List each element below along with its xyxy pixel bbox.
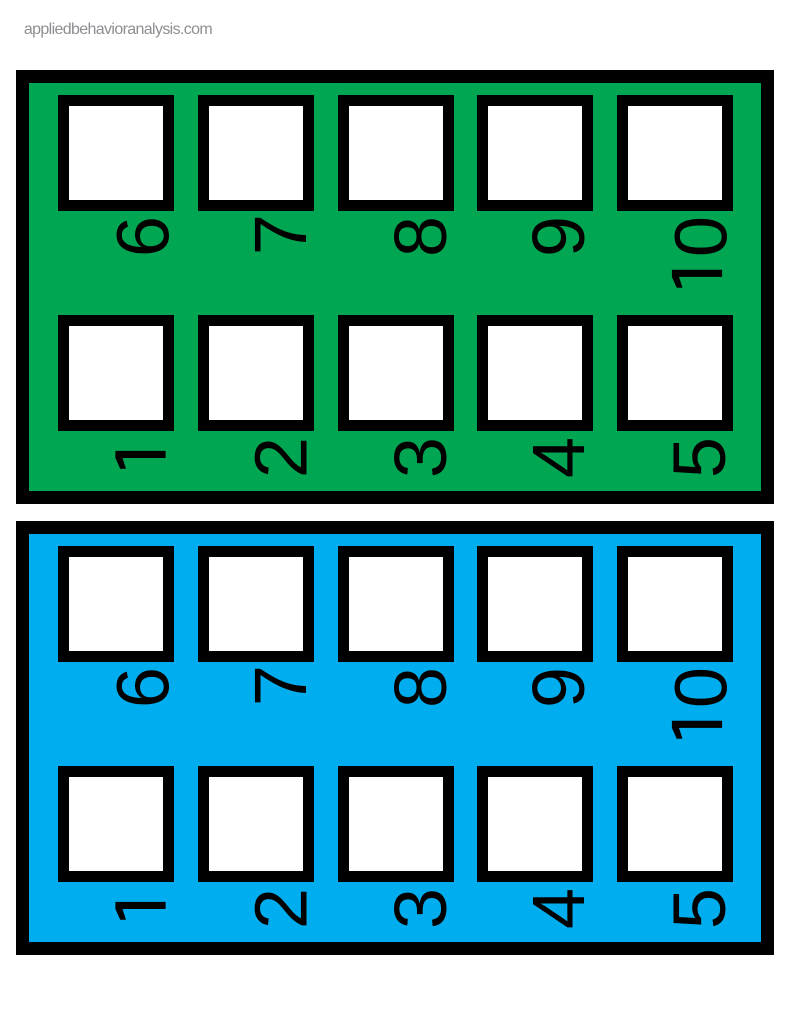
svg-text:5: 5 <box>658 437 741 478</box>
svg-text:3: 3 <box>379 888 462 929</box>
svg-text:2: 2 <box>240 888 323 929</box>
svg-text:6: 6 <box>101 667 184 708</box>
svg-text:appliedbehavioranalysis.com: appliedbehavioranalysis.com <box>24 21 212 38</box>
svg-text:2: 2 <box>240 437 323 478</box>
svg-text:7: 7 <box>239 214 322 255</box>
svg-text:8: 8 <box>379 667 462 708</box>
svg-text:9: 9 <box>517 216 600 257</box>
svg-text:7: 7 <box>239 665 322 706</box>
svg-text:0: 0 <box>660 667 743 708</box>
svg-text:0: 0 <box>660 216 743 257</box>
svg-text:4: 4 <box>517 888 600 929</box>
svg-text:4: 4 <box>517 437 600 478</box>
svg-text:9: 9 <box>517 667 600 708</box>
svg-text:8: 8 <box>379 216 462 257</box>
svg-text:5: 5 <box>658 888 741 929</box>
svg-text:3: 3 <box>379 437 462 478</box>
svg-text:6: 6 <box>101 216 184 257</box>
